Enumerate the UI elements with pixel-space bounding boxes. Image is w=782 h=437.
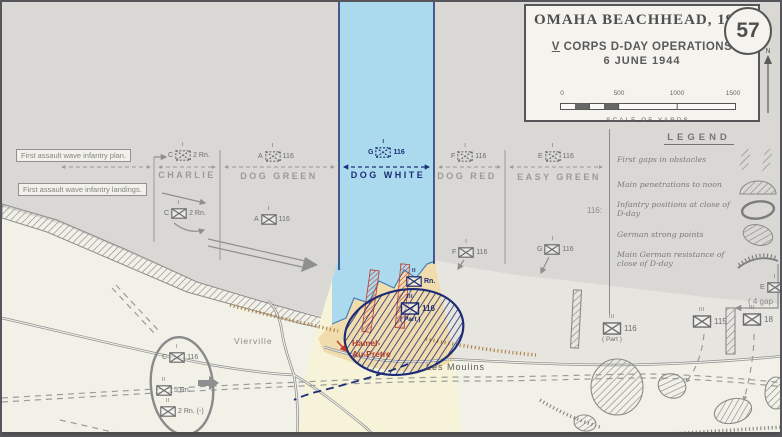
sector-dog-red: DOG RED <box>437 171 497 181</box>
landings-callout: First assault wave infantry landings. <box>18 183 147 196</box>
infantry-box-icon: I <box>261 214 277 225</box>
sector-charlie: CHARLIE <box>158 170 216 180</box>
unit-c-116-vierville: C I 116 <box>162 352 198 363</box>
unit-2nd-rangers-minus: II 2 Rn. (-) <box>160 406 204 417</box>
unit-115th: III 115 <box>692 315 727 328</box>
unit-size-marker: I <box>182 143 184 149</box>
infantry-box-icon: I <box>457 151 473 162</box>
infantry-box-icon: I <box>171 208 187 219</box>
sector-dog-green: DOG GREEN <box>240 171 318 181</box>
unit-prefix: C <box>168 152 173 159</box>
infantry-box-icon: I <box>767 282 782 293</box>
place-les-moulins: Les Moulins <box>426 362 485 372</box>
north-arrow: N <box>760 48 776 118</box>
infantry-box-icon: I <box>544 244 560 255</box>
unit-116th-part-blue: III 116 ( Part ) <box>400 302 435 315</box>
strongpoint-icon <box>735 223 781 247</box>
unit-plan-e-116: E I 116 <box>538 151 574 162</box>
unit-116th-part-grey: III 116 ( Part ) <box>602 322 637 335</box>
unit-landing-c-2rangers: C I 2 Rn. <box>164 208 206 219</box>
infantry-box-icon: II <box>160 406 176 417</box>
unit-plan-c-2rangers: C I 2 Rn. <box>168 150 210 161</box>
sector-dog-white: DOG WHITE <box>351 170 426 180</box>
corps-numeral: V <box>552 41 560 53</box>
unit-e-company-edge: E I <box>760 282 782 293</box>
infantry-box-icon: I <box>169 352 185 363</box>
scale-bar: 0 500 1000 1500 SCALE OF YARDS <box>560 90 736 120</box>
scale-tick-label: 1000 <box>670 90 684 97</box>
infantry-box-icon: I <box>265 151 281 162</box>
scale-tick-label: 500 <box>614 90 625 97</box>
unit-plan-a-116: A I 116 <box>258 151 294 162</box>
infantry-box-icon: I <box>375 147 391 158</box>
map-title: OMAHA BEACHHEAD, 1944 <box>534 12 752 29</box>
legend-item: Main German resistance of close of D-day <box>617 248 781 272</box>
legend-item: Infantry positions at close of D-day <box>617 198 781 222</box>
scale-tick-label: 1500 <box>726 90 740 97</box>
scale-caption: SCALE OF YARDS <box>560 117 736 124</box>
unit-landing-g-116: G I 116 <box>537 244 574 255</box>
unit-18th: III 18 <box>742 313 773 326</box>
infantry-box-icon: III <box>400 302 420 315</box>
legend-item: First gaps in obstacles <box>617 148 781 172</box>
four-gaps-note: ( 4 gap <box>748 297 773 306</box>
infantry-box-icon: III <box>742 313 762 326</box>
infantry-position-oval-icon <box>735 198 781 222</box>
infantry-box-icon: II <box>156 385 172 396</box>
unit-landing-f-116: F I 116 <box>452 247 487 258</box>
infantry-box-icon: II <box>406 276 422 287</box>
infantry-box-icon: I <box>175 150 191 161</box>
legend: LEGEND First gaps in obstacles Main pene… <box>609 129 782 314</box>
infantry-box-icon: I <box>458 247 474 258</box>
unit-plan-g-116: G I 116 <box>368 147 405 158</box>
unit-landing-a-116: A I 116 <box>254 214 290 225</box>
gap-in-obstacles-icon <box>735 148 781 172</box>
place-hamel-au-pretre: Hamel- Au-Pretre <box>352 338 391 360</box>
map-subtitle: V CORPS D-DAY OPERATIONS <box>526 41 758 53</box>
unit-5th-rangers: II 5 Rn. <box>156 385 191 396</box>
north-arrow-graphic <box>762 55 774 115</box>
legend-item: Main penetrations to noon <box>617 173 781 197</box>
unit-plan-f-116: F I 116 <box>451 151 486 162</box>
infantry-box-icon: III <box>602 322 622 335</box>
regiment-116-marker: 116: <box>587 206 602 215</box>
legend-title: LEGEND <box>664 132 734 145</box>
unit-label: 2 Rn. <box>193 152 210 159</box>
place-vierville: Vierville <box>234 336 273 346</box>
map-neatline <box>2 432 780 435</box>
legend-item: German strong points <box>617 223 781 247</box>
north-label: N <box>760 48 776 55</box>
sector-easy-green: EASY GREEN <box>517 172 601 182</box>
unit-rangers-battalion: II Rn. <box>406 276 435 287</box>
resistance-arc-icon <box>735 248 781 272</box>
plan-callout: First assault wave infantry plan. <box>16 149 131 162</box>
omaha-beachhead-map: OMAHA BEACHHEAD, 1944 V CORPS D-DAY OPER… <box>0 0 782 437</box>
scale-bar-graphic <box>560 103 736 111</box>
scale-tick-label: 0 <box>560 90 564 97</box>
infantry-box-icon: III <box>692 315 712 328</box>
penetration-fan-icon <box>735 173 781 197</box>
infantry-box-icon: I <box>545 151 561 162</box>
map-date: 6 JUNE 1944 <box>526 55 758 67</box>
